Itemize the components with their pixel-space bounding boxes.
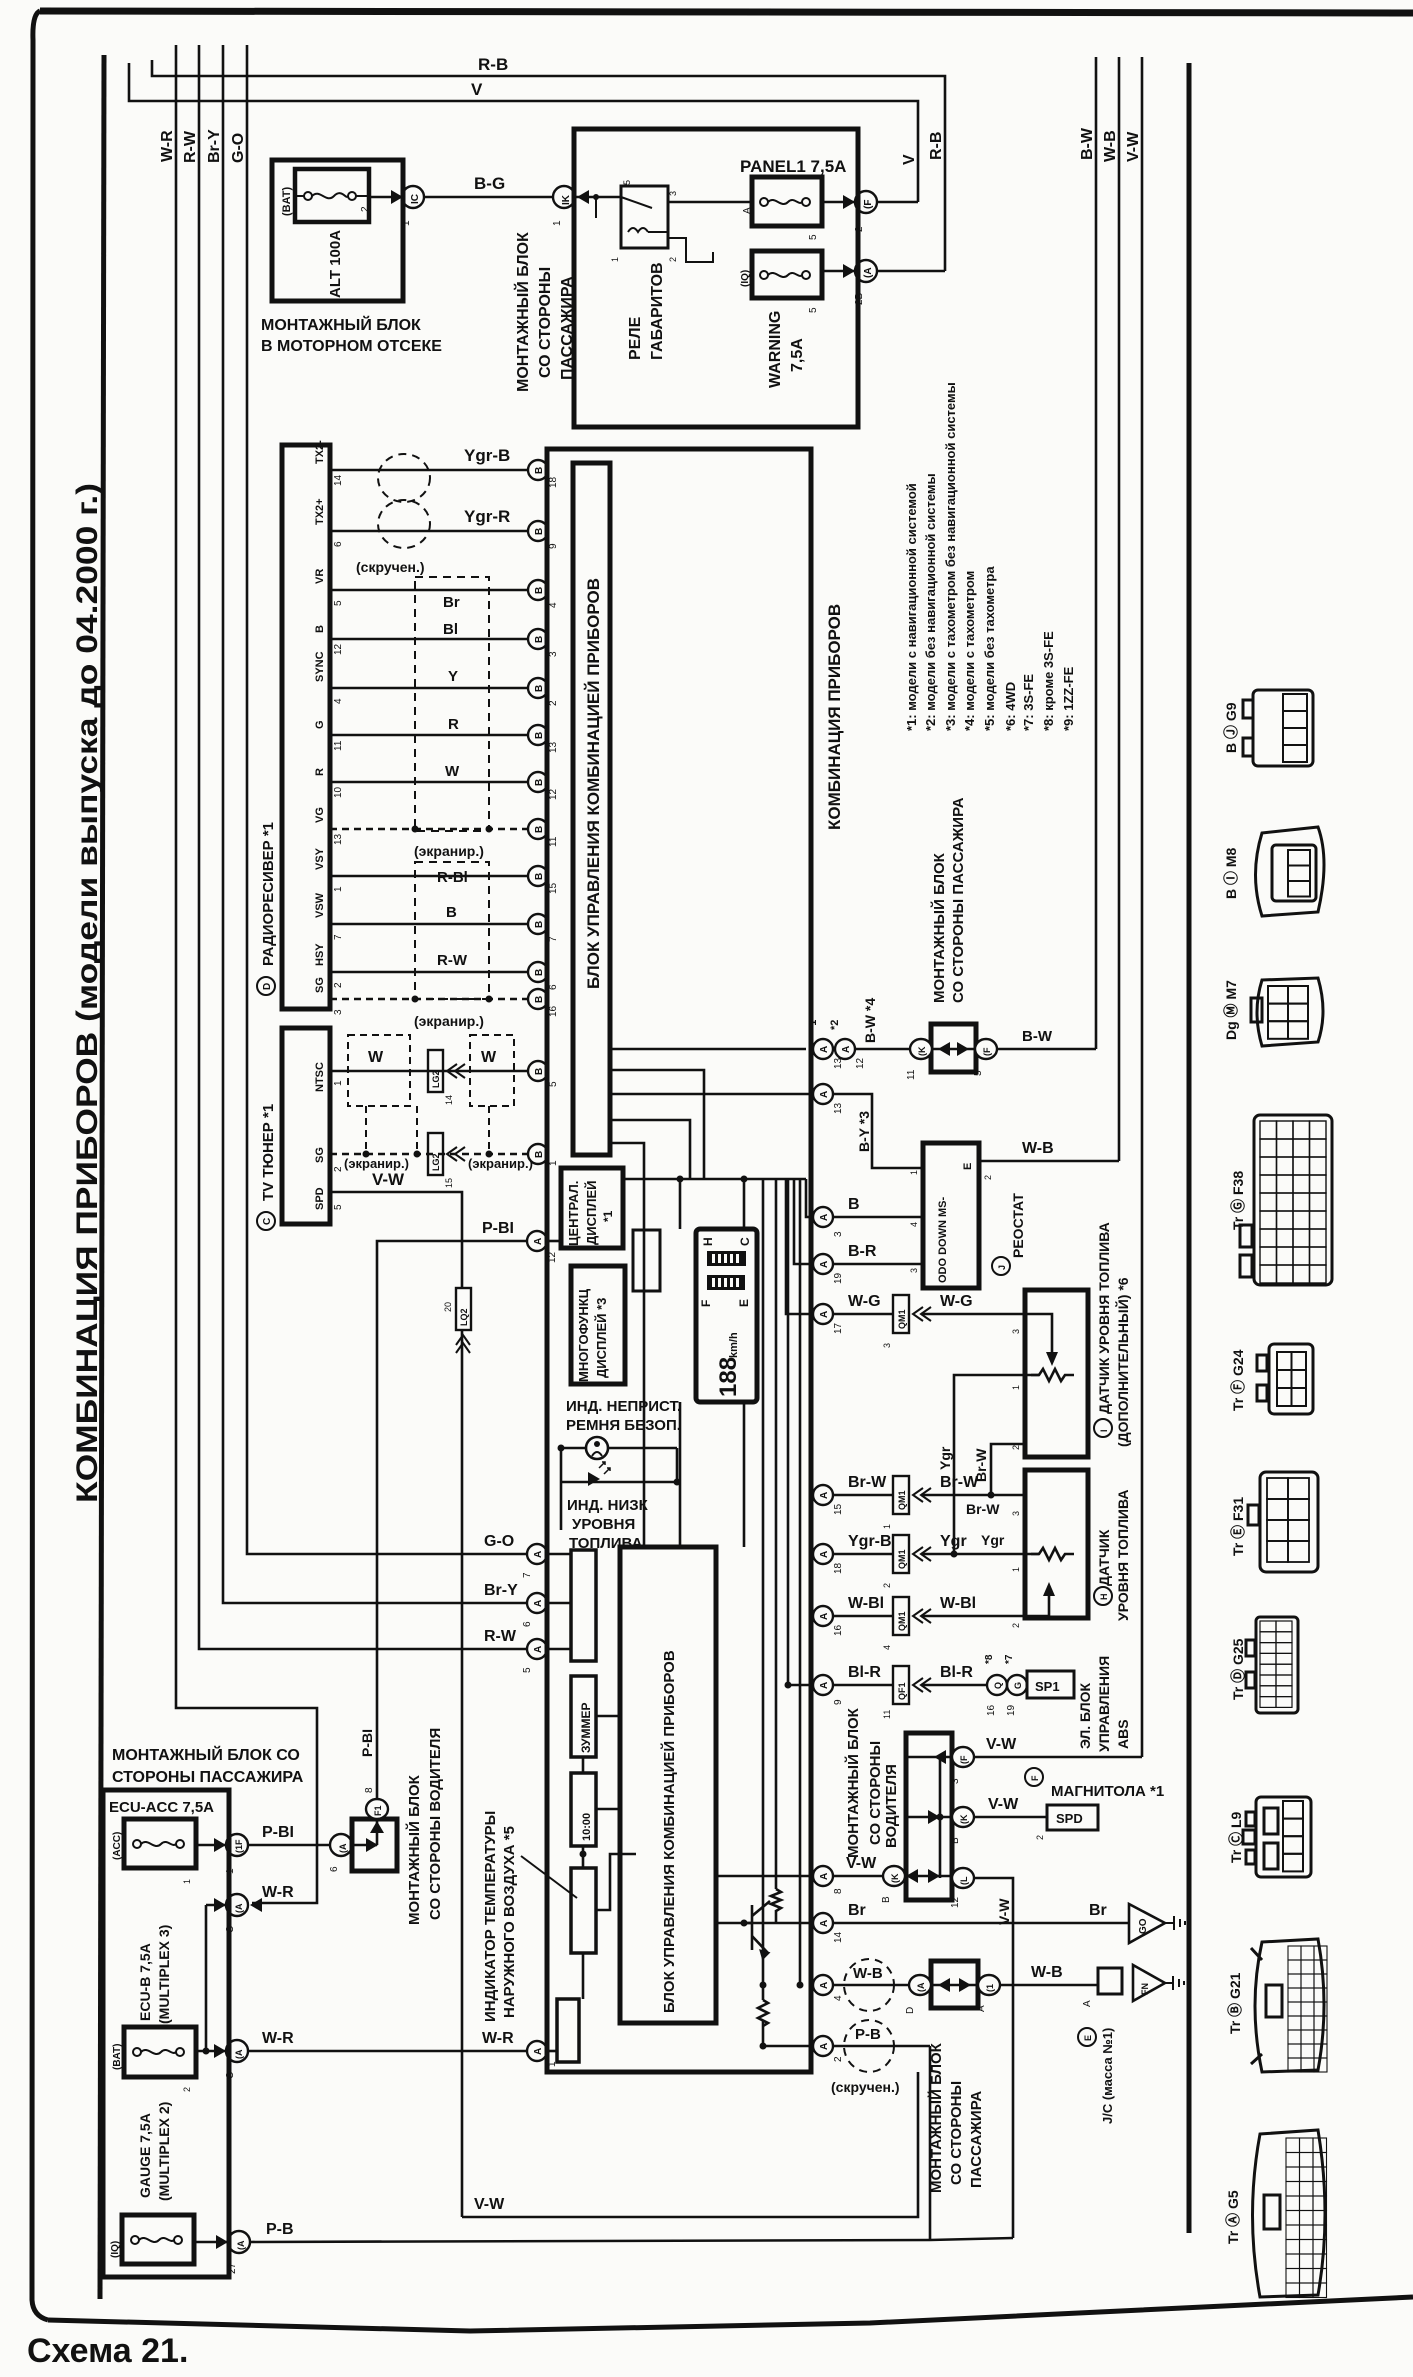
svg-text:3: 3 bbox=[1011, 1329, 1021, 1334]
svg-text:W-B: W-B bbox=[1022, 1140, 1054, 1157]
svg-text:H: H bbox=[1099, 1594, 1109, 1601]
svg-text:15: 15 bbox=[444, 1178, 454, 1188]
svg-text:2: 2 bbox=[668, 257, 678, 262]
svg-text:2: 2 bbox=[360, 206, 371, 212]
svg-text:(A: (A bbox=[236, 2240, 246, 2250]
svg-text:W: W bbox=[481, 1049, 497, 1066]
svg-text:Ygr-B: Ygr-B bbox=[464, 446, 510, 465]
svg-text:7: 7 bbox=[548, 936, 559, 942]
svg-text:G: G bbox=[1013, 1682, 1023, 1689]
svg-text:20: 20 bbox=[443, 1302, 453, 1312]
svg-text:СО СТОРОНЫ: СО СТОРОНЫ bbox=[948, 2081, 965, 2185]
svg-text:ГАБАРИТОВ: ГАБАРИТОВ bbox=[649, 262, 666, 360]
svg-text:НАРУЖНОГО ВОЗДУХА *5: НАРУЖНОГО ВОЗДУХА *5 bbox=[501, 1826, 518, 2018]
svg-text:4: 4 bbox=[333, 698, 344, 704]
svg-text:D: D bbox=[262, 983, 273, 990]
svg-text:8: 8 bbox=[364, 1787, 375, 1793]
svg-text:МОНТАЖНЫЙ БЛОК: МОНТАЖНЫЙ БЛОК bbox=[261, 315, 421, 334]
svg-text:2: 2 bbox=[882, 1583, 892, 1588]
svg-text:188: 188 bbox=[715, 1357, 742, 1397]
svg-text:B: B bbox=[534, 779, 545, 786]
svg-text:QM1: QM1 bbox=[897, 1490, 907, 1510]
svg-text:УРОВНЯ ТОПЛИВА: УРОВНЯ ТОПЛИВА bbox=[1115, 1490, 1131, 1622]
svg-text:Ygr: Ygr bbox=[981, 1532, 1005, 1548]
svg-text:КОМБИНАЦИЯ ПРИБОРОВ: КОМБИНАЦИЯ ПРИБОРОВ bbox=[825, 604, 844, 830]
svg-text:6: 6 bbox=[522, 1621, 533, 1627]
svg-text:16: 16 bbox=[548, 1005, 559, 1017]
svg-text:(L: (L bbox=[959, 1876, 969, 1885]
svg-text:2: 2 bbox=[1035, 1835, 1045, 1840]
svg-text:(MULTIPLEX 3): (MULTIPLEX 3) bbox=[156, 1925, 172, 2024]
svg-text:ИНД. НЕПРИСТ.: ИНД. НЕПРИСТ. bbox=[566, 1398, 681, 1415]
svg-text:Y: Y bbox=[448, 668, 458, 685]
svg-text:ДИСПЛЕЙ *3: ДИСПЛЕЙ *3 bbox=[594, 1298, 609, 1378]
svg-text:*1: модели с навигационной сис: *1: модели с навигационной системой bbox=[904, 483, 919, 731]
svg-text:E: E bbox=[1083, 2035, 1093, 2041]
svg-text:УПРАВЛЕНИЯ: УПРАВЛЕНИЯ bbox=[1096, 1656, 1112, 1752]
svg-text:4: 4 bbox=[548, 602, 559, 608]
svg-text:4: 4 bbox=[882, 1645, 892, 1650]
svg-text:R-B: R-B bbox=[928, 132, 945, 160]
svg-text:B: B bbox=[534, 1151, 545, 1158]
svg-text:4: 4 bbox=[833, 1995, 844, 2001]
svg-text:16: 16 bbox=[833, 1624, 844, 1636]
svg-text:C: C bbox=[225, 1926, 236, 1933]
svg-text:3: 3 bbox=[548, 651, 559, 657]
svg-text:B: B bbox=[881, 1896, 892, 1903]
svg-text:2: 2 bbox=[1011, 1445, 1021, 1450]
svg-text:HSY: HSY bbox=[314, 943, 326, 966]
svg-text:СО СТОРОНЫ: СО СТОРОНЫ bbox=[867, 1741, 884, 1845]
svg-text:ECU-ACC 7,5A: ECU-ACC 7,5A bbox=[109, 1799, 214, 1816]
svg-text:SG: SG bbox=[314, 1147, 326, 1163]
svg-text:ODO DOWN MS-: ODO DOWN MS- bbox=[937, 1197, 949, 1283]
svg-text:1: 1 bbox=[548, 1160, 559, 1166]
svg-text:IC: IC bbox=[410, 194, 421, 204]
svg-text:17: 17 bbox=[833, 1322, 844, 1334]
svg-text:A: A bbox=[533, 2048, 544, 2055]
svg-text:Br: Br bbox=[848, 1902, 866, 1919]
svg-text:3: 3 bbox=[1011, 1511, 1021, 1516]
svg-text:2: 2 bbox=[854, 226, 865, 232]
svg-text:5: 5 bbox=[522, 1667, 533, 1673]
svg-text:1: 1 bbox=[547, 2061, 558, 2067]
svg-text:GO: GO bbox=[1138, 1918, 1149, 1934]
svg-text:(IQ): (IQ) bbox=[740, 270, 751, 287]
svg-text:R-B: R-B bbox=[478, 55, 508, 74]
svg-text:3: 3 bbox=[833, 1231, 844, 1237]
svg-text:VSW: VSW bbox=[314, 892, 326, 918]
svg-text:A: A bbox=[819, 1046, 830, 1053]
svg-text:1: 1 bbox=[610, 257, 620, 262]
svg-text:A: A bbox=[533, 1600, 544, 1607]
svg-text:Br-W: Br-W bbox=[973, 1448, 989, 1482]
svg-text:Dg Ⓜ M7: Dg Ⓜ M7 bbox=[1223, 980, 1239, 1040]
svg-text:ПАССАЖИРА: ПАССАЖИРА bbox=[559, 276, 576, 380]
svg-text:(экранир.): (экранир.) bbox=[414, 1013, 484, 1029]
svg-text:(ДОПОЛНИТЕЛЬНЫЙ) *6: (ДОПОЛНИТЕЛЬНЫЙ) *6 bbox=[1114, 1277, 1131, 1447]
svg-text:ECU-B 7,5A: ECU-B 7,5A bbox=[137, 1943, 153, 2021]
svg-text:IK: IK bbox=[561, 194, 572, 205]
svg-text:R-W: R-W bbox=[437, 952, 468, 969]
svg-text:B-Y *3: B-Y *3 bbox=[856, 1111, 872, 1152]
svg-text:B: B bbox=[534, 467, 545, 474]
svg-text:11: 11 bbox=[548, 836, 559, 847]
svg-text:W-G: W-G bbox=[848, 1293, 881, 1310]
svg-text:H: H bbox=[701, 1237, 715, 1246]
svg-text:3: 3 bbox=[882, 1343, 892, 1348]
svg-text:B: B bbox=[848, 1196, 860, 1213]
svg-text:18: 18 bbox=[833, 1562, 844, 1574]
svg-text:QM1: QM1 bbox=[897, 1549, 907, 1569]
svg-text:I: I bbox=[1099, 1429, 1109, 1432]
svg-text:(скручен.): (скручен.) bbox=[356, 559, 425, 575]
svg-text:СО СТОРОНЫ: СО СТОРОНЫ bbox=[537, 267, 554, 378]
svg-text:Схема 21.: Схема 21. bbox=[27, 2332, 188, 2370]
svg-text:W: W bbox=[368, 1049, 384, 1066]
svg-text:(A: (A bbox=[338, 1843, 348, 1853]
svg-text:B: B bbox=[534, 636, 545, 643]
svg-text:B: B bbox=[534, 969, 545, 976]
svg-text:ЦЕНТРАЛ.: ЦЕНТРАЛ. bbox=[566, 1181, 581, 1246]
svg-text:13: 13 bbox=[548, 741, 559, 753]
svg-text:B: B bbox=[534, 685, 545, 692]
svg-text:14: 14 bbox=[833, 1931, 844, 1943]
svg-text:J/C (масса №1): J/C (масса №1) bbox=[1100, 2028, 1115, 2124]
svg-text:10: 10 bbox=[333, 786, 344, 798]
svg-text:Tr Ⓓ G25: Tr Ⓓ G25 bbox=[1230, 1638, 1246, 1700]
svg-text:TX2+: TX2+ bbox=[314, 498, 326, 525]
svg-text:VR: VR bbox=[314, 569, 326, 584]
svg-text:ИНДИКАТОР ТЕМПЕРАТУРЫ: ИНДИКАТОР ТЕМПЕРАТУРЫ bbox=[482, 1811, 499, 2022]
svg-text:СО СТОРОНЫ ПАССАЖИРА: СО СТОРОНЫ ПАССАЖИРА bbox=[950, 797, 967, 1003]
svg-text:Br-W: Br-W bbox=[848, 1474, 887, 1491]
svg-text:G-O: G-O bbox=[484, 1533, 514, 1550]
svg-text:(MULTIPLEX 2): (MULTIPLEX 2) bbox=[156, 2102, 172, 2201]
svg-text:Ygr-R: Ygr-R bbox=[464, 507, 510, 526]
svg-text:1: 1 bbox=[225, 1868, 236, 1874]
svg-text:GAUGE 7,5A: GAUGE 7,5A bbox=[137, 2113, 153, 2198]
svg-text:QM1: QM1 bbox=[897, 1611, 907, 1631]
svg-text:R-W: R-W bbox=[182, 130, 199, 163]
svg-text:19: 19 bbox=[1006, 1704, 1017, 1716]
svg-text:2: 2 bbox=[983, 1175, 993, 1180]
svg-text:(K: (K bbox=[959, 1814, 969, 1824]
svg-text:*3: модели с тахометром без на: *3: модели с тахометром без навигационно… bbox=[943, 382, 958, 731]
svg-text:10:00: 10:00 bbox=[581, 1813, 593, 1841]
svg-text:РЕМНЯ БЕЗОП.: РЕМНЯ БЕЗОП. bbox=[566, 1417, 681, 1434]
svg-text:Ygr-B: Ygr-B bbox=[848, 1533, 892, 1550]
svg-text:Tr Ⓔ F31: Tr Ⓔ F31 bbox=[1230, 1497, 1246, 1556]
svg-text:B-W: B-W bbox=[1022, 1028, 1053, 1045]
svg-text:*9: 1ZZ-FE: *9: 1ZZ-FE bbox=[1061, 666, 1076, 731]
svg-text:2: 2 bbox=[1011, 1623, 1021, 1628]
svg-text:ЭЛ. БЛОК: ЭЛ. БЛОК bbox=[1077, 1683, 1093, 1749]
svg-text:Br-Y: Br-Y bbox=[206, 129, 223, 163]
svg-text:V-W: V-W bbox=[474, 2196, 505, 2213]
svg-text:A: A bbox=[819, 1682, 830, 1689]
svg-text:(F: (F bbox=[863, 200, 874, 209]
svg-text:2: 2 bbox=[333, 982, 344, 988]
svg-text:V: V bbox=[901, 154, 918, 165]
svg-text:B: B bbox=[534, 1068, 545, 1075]
svg-text:*6: 4WD: *6: 4WD bbox=[1003, 682, 1018, 731]
svg-text:A: A bbox=[533, 1646, 544, 1653]
svg-text:27: 27 bbox=[227, 2262, 238, 2274]
svg-text:(1F: (1F bbox=[234, 1839, 244, 1853]
svg-text:16: 16 bbox=[986, 1704, 997, 1716]
svg-text:*7: *7 bbox=[1004, 1654, 1015, 1664]
svg-text:(F: (F bbox=[982, 1047, 992, 1056]
svg-text:ALT 100A: ALT 100A bbox=[327, 230, 344, 298]
svg-text:B: B bbox=[534, 826, 545, 833]
svg-text:*8: *8 bbox=[984, 1654, 995, 1664]
svg-text:6: 6 bbox=[333, 541, 344, 547]
svg-text:*5: модели без тахометра: *5: модели без тахометра bbox=[982, 566, 997, 731]
svg-text:Q: Q bbox=[993, 1682, 1003, 1689]
svg-text:МНОГОФУНКЦ: МНОГОФУНКЦ bbox=[576, 1288, 591, 1382]
svg-text:PANEL1 7,5A: PANEL1 7,5A bbox=[740, 157, 846, 176]
svg-text:(IQ): (IQ) bbox=[110, 2241, 121, 2258]
svg-text:LG2: LG2 bbox=[431, 1153, 441, 1171]
svg-text:G-O: G-O bbox=[230, 133, 247, 163]
svg-text:13: 13 bbox=[833, 1102, 844, 1114]
svg-text:МАГНИТОЛА *1: МАГНИТОЛА *1 bbox=[1051, 1783, 1164, 1800]
svg-text:V-W: V-W bbox=[986, 1736, 1017, 1753]
svg-text:Br-W: Br-W bbox=[966, 1501, 1000, 1517]
svg-text:Tr Ⓕ G24: Tr Ⓕ G24 bbox=[1230, 1349, 1246, 1411]
svg-text:(A: (A bbox=[916, 1982, 926, 1992]
svg-text:1: 1 bbox=[552, 220, 563, 226]
svg-text:ИНД. НИЗК: ИНД. НИЗК bbox=[567, 1497, 649, 1514]
svg-text:Br: Br bbox=[1089, 1902, 1107, 1919]
svg-text:5: 5 bbox=[333, 600, 344, 606]
svg-text:МОНТАЖНЫЙ БЛОК: МОНТАЖНЫЙ БЛОК bbox=[405, 1774, 423, 1925]
svg-text:QM1: QM1 bbox=[897, 1309, 907, 1329]
svg-text:A: A bbox=[841, 1046, 852, 1053]
svg-text:Tr Ⓐ G5: Tr Ⓐ G5 bbox=[1225, 2190, 1241, 2244]
svg-text:SYNC: SYNC bbox=[314, 651, 326, 682]
svg-text:3: 3 bbox=[668, 191, 678, 196]
svg-text:A: A bbox=[976, 2005, 987, 2012]
svg-text:13: 13 bbox=[333, 833, 344, 845]
svg-text:(K: (K bbox=[917, 1046, 927, 1056]
svg-text:W-G: W-G bbox=[940, 1293, 973, 1310]
svg-text:R: R bbox=[448, 716, 459, 733]
svg-text:D: D bbox=[905, 2007, 916, 2014]
svg-text:B: B bbox=[314, 625, 326, 633]
svg-text:R: R bbox=[314, 768, 326, 776]
svg-text:A: A bbox=[533, 1238, 544, 1245]
svg-text:B: B bbox=[534, 996, 545, 1003]
svg-text:Ygr: Ygr bbox=[937, 1446, 953, 1470]
svg-text:F1: F1 bbox=[373, 1805, 383, 1816]
svg-text:SPD: SPD bbox=[1056, 1811, 1083, 1826]
svg-text:A: A bbox=[819, 1982, 830, 1989]
svg-text:УРОВНЯ: УРОВНЯ bbox=[572, 1516, 635, 1533]
svg-text:(экранир.): (экранир.) bbox=[468, 1156, 533, 1171]
svg-text:11: 11 bbox=[882, 1710, 892, 1719]
svg-text:A: A bbox=[819, 1613, 830, 1620]
svg-text:КОМБИНАЦИЯ ПРИБОРОВ (модели вы: КОМБИНАЦИЯ ПРИБОРОВ (модели выпуска до 0… bbox=[71, 483, 104, 1503]
svg-text:БЛОК УПРАВЛЕНИЯ КОМБИНАЦИЕЙ ПР: БЛОК УПРАВЛЕНИЯ КОМБИНАЦИЕЙ ПРИБОРОВ bbox=[660, 1650, 678, 2013]
svg-text:6: 6 bbox=[548, 984, 559, 990]
svg-text:1: 1 bbox=[909, 1170, 919, 1175]
svg-text:J: J bbox=[997, 1265, 1007, 1270]
svg-text:QF1: QF1 bbox=[897, 1682, 907, 1700]
svg-text:2: 2 bbox=[548, 700, 559, 706]
svg-text:1: 1 bbox=[333, 886, 344, 892]
svg-text:(A: (A bbox=[234, 1903, 244, 1913]
svg-text:W-B: W-B bbox=[1031, 1964, 1063, 1981]
svg-text:14: 14 bbox=[333, 474, 344, 486]
svg-text:ВОДИТЕЛЯ: ВОДИТЕЛЯ bbox=[883, 1764, 900, 1848]
svg-text:W-B: W-B bbox=[1102, 130, 1119, 162]
svg-text:7: 7 bbox=[333, 934, 344, 940]
svg-text:W-Bl: W-Bl bbox=[848, 1595, 884, 1612]
svg-text:12: 12 bbox=[547, 1251, 558, 1263]
svg-text:P-BI: P-BI bbox=[262, 1824, 294, 1841]
svg-text:F: F bbox=[1030, 1775, 1040, 1781]
svg-text:1: 1 bbox=[180, 2275, 190, 2280]
svg-text:9: 9 bbox=[833, 1699, 844, 1705]
svg-text:W-R: W-R bbox=[482, 2030, 514, 2047]
svg-text:6: 6 bbox=[329, 1866, 340, 1872]
svg-text:(BAT): (BAT) bbox=[112, 2044, 123, 2070]
svg-text:B-W: B-W bbox=[1079, 127, 1096, 160]
svg-text:B-W *4: B-W *4 bbox=[862, 998, 878, 1043]
svg-text:B Ⓙ G9: B Ⓙ G9 bbox=[1223, 702, 1239, 753]
svg-text:*1: *1 bbox=[601, 1210, 615, 1222]
svg-text:12: 12 bbox=[548, 788, 559, 800]
svg-text:W-B: W-B bbox=[853, 1965, 883, 1982]
svg-text:A: A bbox=[742, 207, 753, 214]
svg-text:ДИСПЛЕЙ: ДИСПЛЕЙ bbox=[584, 1181, 599, 1245]
svg-text:3: 3 bbox=[950, 1778, 961, 1784]
svg-text:РАДИОРЕСИВЕР *1: РАДИОРЕСИВЕР *1 bbox=[260, 822, 277, 966]
svg-text:Br-Y: Br-Y bbox=[484, 1582, 518, 1599]
svg-text:(скручен.): (скручен.) bbox=[831, 2079, 900, 2095]
svg-text:W-R: W-R bbox=[159, 130, 176, 162]
svg-text:*4: модели с тахометром: *4: модели с тахометром bbox=[962, 571, 977, 731]
svg-text:Bl-R: Bl-R bbox=[848, 1664, 881, 1681]
svg-text:F: F bbox=[699, 1300, 713, 1307]
svg-text:7: 7 bbox=[522, 1572, 533, 1578]
svg-text:V: V bbox=[471, 80, 483, 99]
svg-text:W-Bl: W-Bl bbox=[940, 1595, 976, 1612]
svg-text:Bl: Bl bbox=[443, 621, 458, 638]
svg-text:(F: (F bbox=[959, 1755, 969, 1764]
svg-text:12: 12 bbox=[333, 643, 344, 655]
svg-text:ЗУММЕР: ЗУММЕР bbox=[579, 1702, 593, 1753]
svg-text:B Ⓘ M8: B Ⓘ M8 bbox=[1223, 847, 1239, 899]
svg-text:5: 5 bbox=[973, 1070, 984, 1076]
svg-text:8: 8 bbox=[833, 1888, 844, 1894]
svg-text:18: 18 bbox=[548, 476, 559, 488]
svg-text:A: A bbox=[819, 2043, 830, 2050]
svg-text:5: 5 bbox=[333, 1204, 344, 1210]
svg-text:R-Bl: R-Bl bbox=[437, 869, 468, 886]
svg-text:A: A bbox=[819, 1920, 830, 1927]
svg-text:NTSC: NTSC bbox=[314, 1062, 326, 1092]
svg-text:C: C bbox=[225, 2072, 236, 2079]
svg-text:V-W: V-W bbox=[1125, 131, 1142, 162]
svg-text:E: E bbox=[962, 1163, 974, 1170]
svg-text:FN: FN bbox=[1140, 1983, 1150, 1995]
svg-text:W-R: W-R bbox=[262, 1884, 294, 1901]
svg-text:3: 3 bbox=[909, 1268, 919, 1273]
svg-text:W-R: W-R bbox=[262, 2030, 294, 2047]
svg-text:СО СТОРОНЫ ВОДИТЕЛЯ: СО СТОРОНЫ ВОДИТЕЛЯ bbox=[427, 1728, 444, 1920]
svg-text:МОНТАЖНЫЙ БЛОК СО: МОНТАЖНЫЙ БЛОК СО bbox=[112, 1745, 300, 1764]
svg-text:*2: модели без навигационной с: *2: модели без навигационной системы bbox=[923, 473, 938, 731]
svg-text:A: A bbox=[819, 1261, 830, 1268]
svg-text:МОНТАЖНЫЙ БЛОК: МОНТАЖНЫЙ БЛОК bbox=[513, 232, 532, 392]
svg-text:1: 1 bbox=[882, 1524, 892, 1529]
svg-text:B: B bbox=[534, 732, 545, 739]
svg-text:11: 11 bbox=[906, 1069, 917, 1080]
svg-text:1: 1 bbox=[182, 1879, 192, 1884]
svg-text:TV ТЮНЕР *1: TV ТЮНЕР *1 bbox=[260, 1104, 277, 1201]
svg-text:V-W: V-W bbox=[996, 1898, 1012, 1925]
svg-text:(K: (K bbox=[890, 1873, 900, 1883]
svg-text:4: 4 bbox=[909, 1222, 919, 1227]
svg-text:(экранир.): (экранир.) bbox=[344, 1156, 409, 1171]
svg-text:Tr Ⓖ F38: Tr Ⓖ F38 bbox=[1230, 1171, 1246, 1230]
svg-text:G: G bbox=[314, 720, 326, 729]
svg-text:B-G: B-G bbox=[474, 174, 505, 193]
svg-text:*7: 3S-FE: *7: 3S-FE bbox=[1021, 674, 1036, 731]
svg-text:A: A bbox=[819, 1551, 830, 1558]
svg-text:ПАССАЖИРА: ПАССАЖИРА bbox=[968, 2091, 985, 2188]
svg-text:ABS: ABS bbox=[1115, 1719, 1131, 1749]
svg-text:РЕЛЕ: РЕЛЕ bbox=[627, 316, 644, 360]
svg-text:1: 1 bbox=[1011, 1385, 1021, 1390]
svg-text:Br: Br bbox=[443, 594, 460, 611]
svg-text:1: 1 bbox=[1011, 1567, 1021, 1572]
svg-text:C: C bbox=[738, 1237, 752, 1246]
svg-text:ДАТЧИК УРОВНЯ ТОПЛИВА: ДАТЧИК УРОВНЯ ТОПЛИВА bbox=[1096, 1222, 1112, 1414]
svg-text:(A: (A bbox=[234, 2049, 244, 2059]
svg-text:Tr Ⓑ G21: Tr Ⓑ G21 bbox=[1227, 1972, 1243, 2034]
svg-text:19: 19 bbox=[833, 1272, 844, 1284]
svg-text:P-BI: P-BI bbox=[359, 1729, 375, 1757]
svg-text:(1: (1 bbox=[985, 1984, 995, 1992]
svg-text:2B: 2B bbox=[854, 292, 865, 305]
svg-text:A: A bbox=[819, 1311, 830, 1318]
svg-text:TX2-: TX2- bbox=[314, 440, 326, 464]
svg-text:SP1: SP1 bbox=[1035, 1679, 1060, 1694]
svg-text:2: 2 bbox=[182, 2087, 192, 2092]
svg-text:РЕОСТАТ: РЕОСТАТ bbox=[1010, 1193, 1026, 1258]
svg-text:VG: VG bbox=[314, 807, 326, 823]
svg-text:7,5A: 7,5A bbox=[789, 338, 806, 372]
svg-text:A: A bbox=[819, 1873, 830, 1880]
svg-text:15: 15 bbox=[833, 1503, 844, 1515]
svg-text:VSY: VSY bbox=[314, 847, 326, 870]
svg-text:5: 5 bbox=[622, 180, 632, 185]
svg-text:LQ2: LQ2 bbox=[459, 1308, 469, 1326]
svg-text:B: B bbox=[446, 904, 457, 921]
svg-text:2: 2 bbox=[333, 1166, 344, 1172]
svg-text:SG: SG bbox=[314, 977, 326, 993]
svg-text:5: 5 bbox=[548, 1081, 559, 1087]
svg-text:12: 12 bbox=[950, 1896, 961, 1908]
svg-text:(BAT): (BAT) bbox=[281, 187, 293, 216]
svg-text:Bl-R: Bl-R bbox=[940, 1664, 973, 1681]
svg-text:P-B: P-B bbox=[855, 2026, 881, 2043]
svg-text:B: B bbox=[534, 587, 545, 594]
